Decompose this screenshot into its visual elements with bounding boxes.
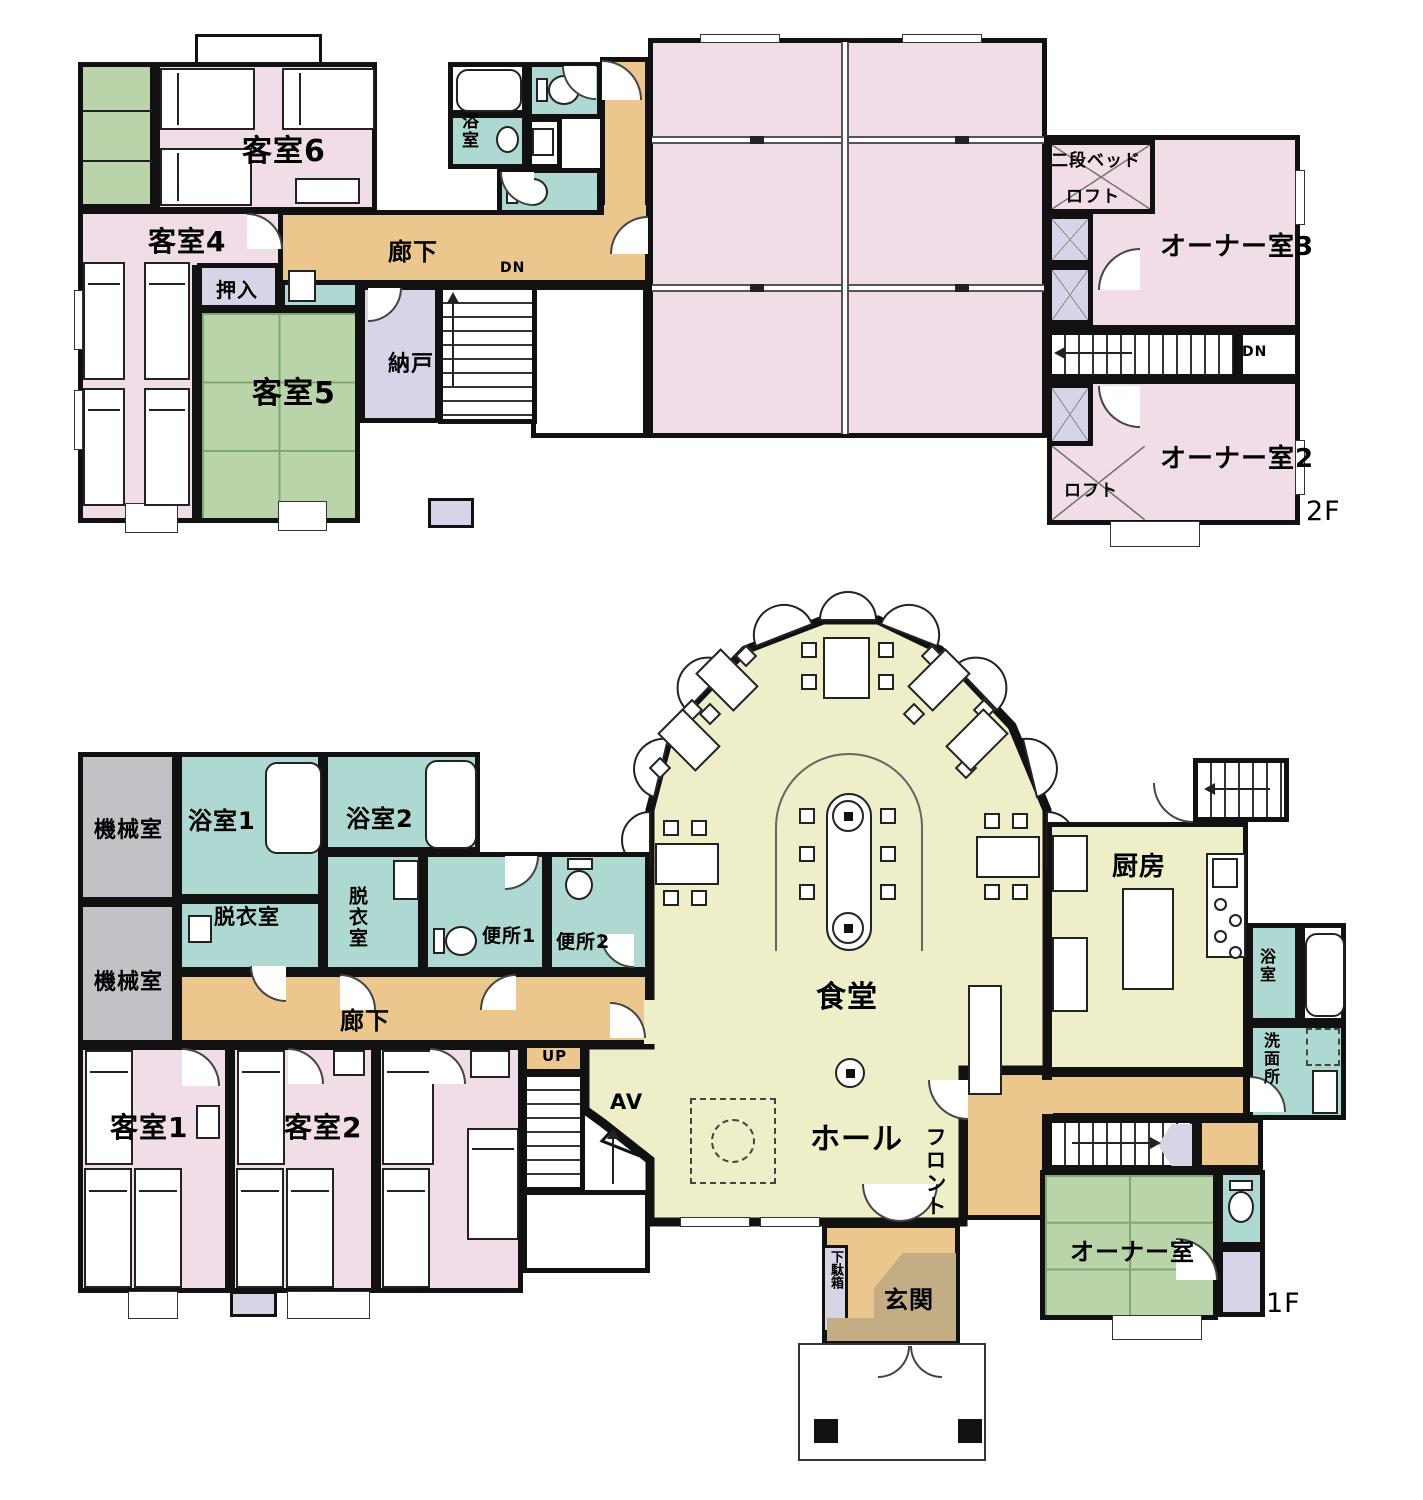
room-corridor-1f (177, 972, 650, 1045)
bed-symbol (467, 1128, 519, 1240)
room-toilet2 (547, 852, 650, 972)
column-core (846, 1069, 855, 1078)
closet-symbol (1047, 265, 1093, 325)
kitchen-sink-symbol (1212, 858, 1238, 888)
wall-opening (1041, 1080, 1053, 1114)
chair-symbol (799, 846, 815, 862)
room-label-guest4: 客室4 (148, 220, 226, 260)
kitchen-counter (1052, 937, 1088, 1012)
window-symbol (680, 1217, 750, 1227)
room-label-dining: 食堂 (816, 972, 878, 1016)
stairs-arrow (612, 1136, 614, 1184)
corridor-join-patch (604, 205, 646, 217)
room-label-toilet1: 便所1 (482, 921, 536, 948)
table-symbol (655, 843, 719, 885)
floorplan-canvas: 客室6 客室4 押入 客室5 納戸 廊下 浴室 DN 二段ベッド ロフト オーナ… (0, 0, 1423, 1500)
bed-symbol (84, 1168, 132, 1288)
room-label-machine1: 機械室 (94, 812, 163, 844)
stairs-arrow-head (447, 292, 459, 303)
chair-symbol (691, 820, 707, 836)
stove-burner-icon (1214, 898, 1227, 911)
room-label-kitchen: 厨房 (1112, 846, 1166, 883)
toilet-tank-symbol (536, 78, 548, 102)
stairs-1f-up (522, 1072, 585, 1192)
floor-1-label: 1F (1266, 1288, 1301, 1319)
bathtub-symbol (1305, 933, 1345, 1017)
table-symbol (823, 637, 870, 699)
chair-symbol (984, 884, 1000, 900)
sink-symbol (288, 270, 316, 302)
genkan-tataki-floor (827, 1318, 883, 1341)
porch-post (814, 1419, 838, 1443)
chair-symbol (880, 884, 896, 900)
chair-symbol (801, 674, 817, 690)
partition-stub (750, 284, 764, 292)
bed-symbol (144, 262, 190, 380)
closet-symbol (1218, 1247, 1265, 1317)
bay-window (1112, 1315, 1202, 1340)
nightstand-symbol (470, 1050, 510, 1078)
chair-symbol (663, 820, 679, 836)
stairs-lower-landing (522, 1190, 650, 1273)
chair-symbol (691, 890, 707, 906)
column-core (844, 812, 853, 821)
room-label-nando: 納戸 (388, 346, 434, 378)
nightstand-symbol (333, 1050, 365, 1076)
chair-symbol (880, 846, 896, 862)
chair-symbol (1012, 813, 1028, 829)
room-label-corridor-2f: 廊下 (388, 232, 438, 267)
chair-symbol (1012, 884, 1028, 900)
window-symbol (902, 34, 982, 43)
toilet-bowl-symbol (1228, 1191, 1254, 1223)
bed-symbol (382, 1168, 430, 1288)
room-kitchen-corridor (1047, 1072, 1248, 1118)
window-symbol (1295, 170, 1305, 225)
bathtub-symbol (456, 69, 522, 112)
chair-symbol (799, 808, 815, 824)
chair-symbol (878, 642, 894, 658)
chair-symbol (878, 674, 894, 690)
bed-symbol (237, 1050, 285, 1165)
divider-line (82, 110, 152, 112)
bed-symbol (160, 68, 255, 130)
room-label-owner2: オーナー室2 (1160, 438, 1314, 475)
kitchen-counter (1052, 835, 1088, 892)
bed-symbol (286, 1168, 334, 1288)
bed-symbol (382, 1050, 434, 1165)
sink-symbol (496, 126, 519, 153)
porch-post (958, 1419, 982, 1443)
front-desk-counter (968, 985, 1002, 1095)
room-label-washroom: 洗面所 (1258, 1032, 1282, 1086)
room-label-shoe-box: 下駄箱 (826, 1250, 845, 1289)
hearth-dashed-circle (711, 1119, 755, 1163)
stairs-arrow (452, 300, 454, 386)
bench-symbol (295, 178, 360, 204)
room-label-owner-1f: オーナー室 (1070, 1232, 1195, 1267)
bed-symbol (236, 1168, 284, 1288)
window-symbol (74, 390, 83, 450)
stove-burner-icon (1229, 914, 1242, 927)
room-label-guest5: 客室5 (252, 368, 336, 412)
label-loft-lower: ロフト (1064, 476, 1118, 501)
room-label-guest2: 客室2 (284, 1106, 362, 1146)
washing-machine-symbol (1306, 1028, 1340, 1066)
room-closet-green-strip (78, 62, 155, 209)
bay-window (278, 501, 327, 531)
room-corridor-2f (278, 210, 650, 285)
room-label-guest6: 客室6 (242, 126, 326, 170)
label-dn-right: DN (1242, 344, 1267, 360)
room-label-corridor-1f: 廊下 (340, 1001, 390, 1036)
bed-symbol (160, 148, 252, 206)
floor-2-label: 2F (1306, 496, 1341, 527)
room-label-bath3: 浴室 (1254, 948, 1278, 984)
chair-symbol (663, 890, 679, 906)
room-label-owner3: オーナー室3 (1160, 226, 1314, 263)
wall-opening (644, 1000, 658, 1044)
room-label-bath-2f: 浴室 (456, 112, 481, 150)
window-symbol (74, 290, 83, 350)
stairs-arrow (1072, 1142, 1150, 1144)
partition-line (841, 42, 849, 434)
bay-porch (428, 498, 474, 528)
stairs-arrow (1062, 352, 1132, 354)
label-loft-upper: ロフト (1066, 182, 1120, 207)
stairs-arrow-head (1150, 1137, 1161, 1149)
room-label-toilet2: 便所2 (556, 927, 610, 954)
stove-burner-icon (1229, 946, 1242, 959)
sink-symbol (393, 860, 419, 900)
room-label-oshiire: 押入 (216, 274, 258, 303)
room-label-front: フロント (920, 1126, 950, 1218)
chair-symbol (801, 642, 817, 658)
bay-window (128, 1291, 178, 1319)
room-label-dressing1: 脱衣室 (214, 901, 280, 931)
toilet-bowl-symbol (445, 926, 477, 956)
bay-window (287, 1291, 370, 1319)
table-symbol (976, 836, 1040, 878)
room-label-hall: ホール (810, 1114, 903, 1158)
partition-stub (955, 284, 969, 292)
stairs-arrow-head (1204, 783, 1215, 795)
room-guest5 (197, 308, 360, 523)
closet-symbol (1047, 383, 1093, 446)
partition-stub (955, 136, 969, 144)
room-label-machine2: 機械室 (94, 964, 163, 996)
room-label-dressing2: 脱衣室 (344, 886, 371, 949)
cabinet-symbol (532, 128, 554, 156)
toilet-bowl-symbol (565, 870, 593, 900)
kitchen-island-counter (1122, 888, 1174, 990)
label-bunk-bed: 二段ベッド (1051, 146, 1141, 171)
bay-window (125, 503, 178, 533)
room-label-bath1: 浴室1 (188, 801, 256, 836)
label-up: UP (542, 1047, 567, 1065)
toilet-tank-symbol (433, 928, 445, 954)
bathtub-symbol (265, 762, 322, 854)
bed-symbol (134, 1168, 182, 1288)
column-core (844, 924, 853, 933)
chair-symbol (799, 884, 815, 900)
room-stairwell-void (531, 285, 648, 438)
stairs-arrow-head (1054, 347, 1065, 359)
bed-symbol (144, 388, 190, 506)
nightstand-symbol (196, 1105, 220, 1139)
stairs-arrow-head (607, 1128, 619, 1139)
toilet-tank-symbol (1229, 1180, 1253, 1191)
toilet-tank-symbol (567, 858, 593, 870)
stairs-arrow (1212, 788, 1270, 790)
bay-window (1110, 521, 1200, 547)
divider-line (82, 160, 152, 162)
bed-symbol (282, 68, 375, 130)
bed-symbol (83, 388, 125, 506)
stairs-2f-right (1047, 330, 1238, 379)
stove-burner-icon (1214, 930, 1227, 943)
sink-symbol (1312, 1070, 1338, 1114)
partition-stub (750, 136, 764, 144)
window-symbol (760, 1217, 820, 1227)
closet-symbol (1047, 214, 1093, 265)
label-dn-left: DN (500, 260, 525, 276)
bathtub-symbol (425, 760, 477, 849)
bed-symbol (83, 262, 125, 380)
sink-symbol (188, 915, 212, 943)
label-av: AV (610, 1090, 643, 1114)
room-label-genkan: 玄関 (884, 1280, 934, 1315)
corridor-stub (1197, 1118, 1263, 1170)
bay-porch (230, 1291, 277, 1317)
room-label-bath2: 浴室2 (346, 799, 414, 834)
chair-symbol (984, 813, 1000, 829)
room-label-guest1: 客室1 (110, 1106, 188, 1146)
chair-symbol (880, 808, 896, 824)
window-symbol (700, 34, 780, 43)
